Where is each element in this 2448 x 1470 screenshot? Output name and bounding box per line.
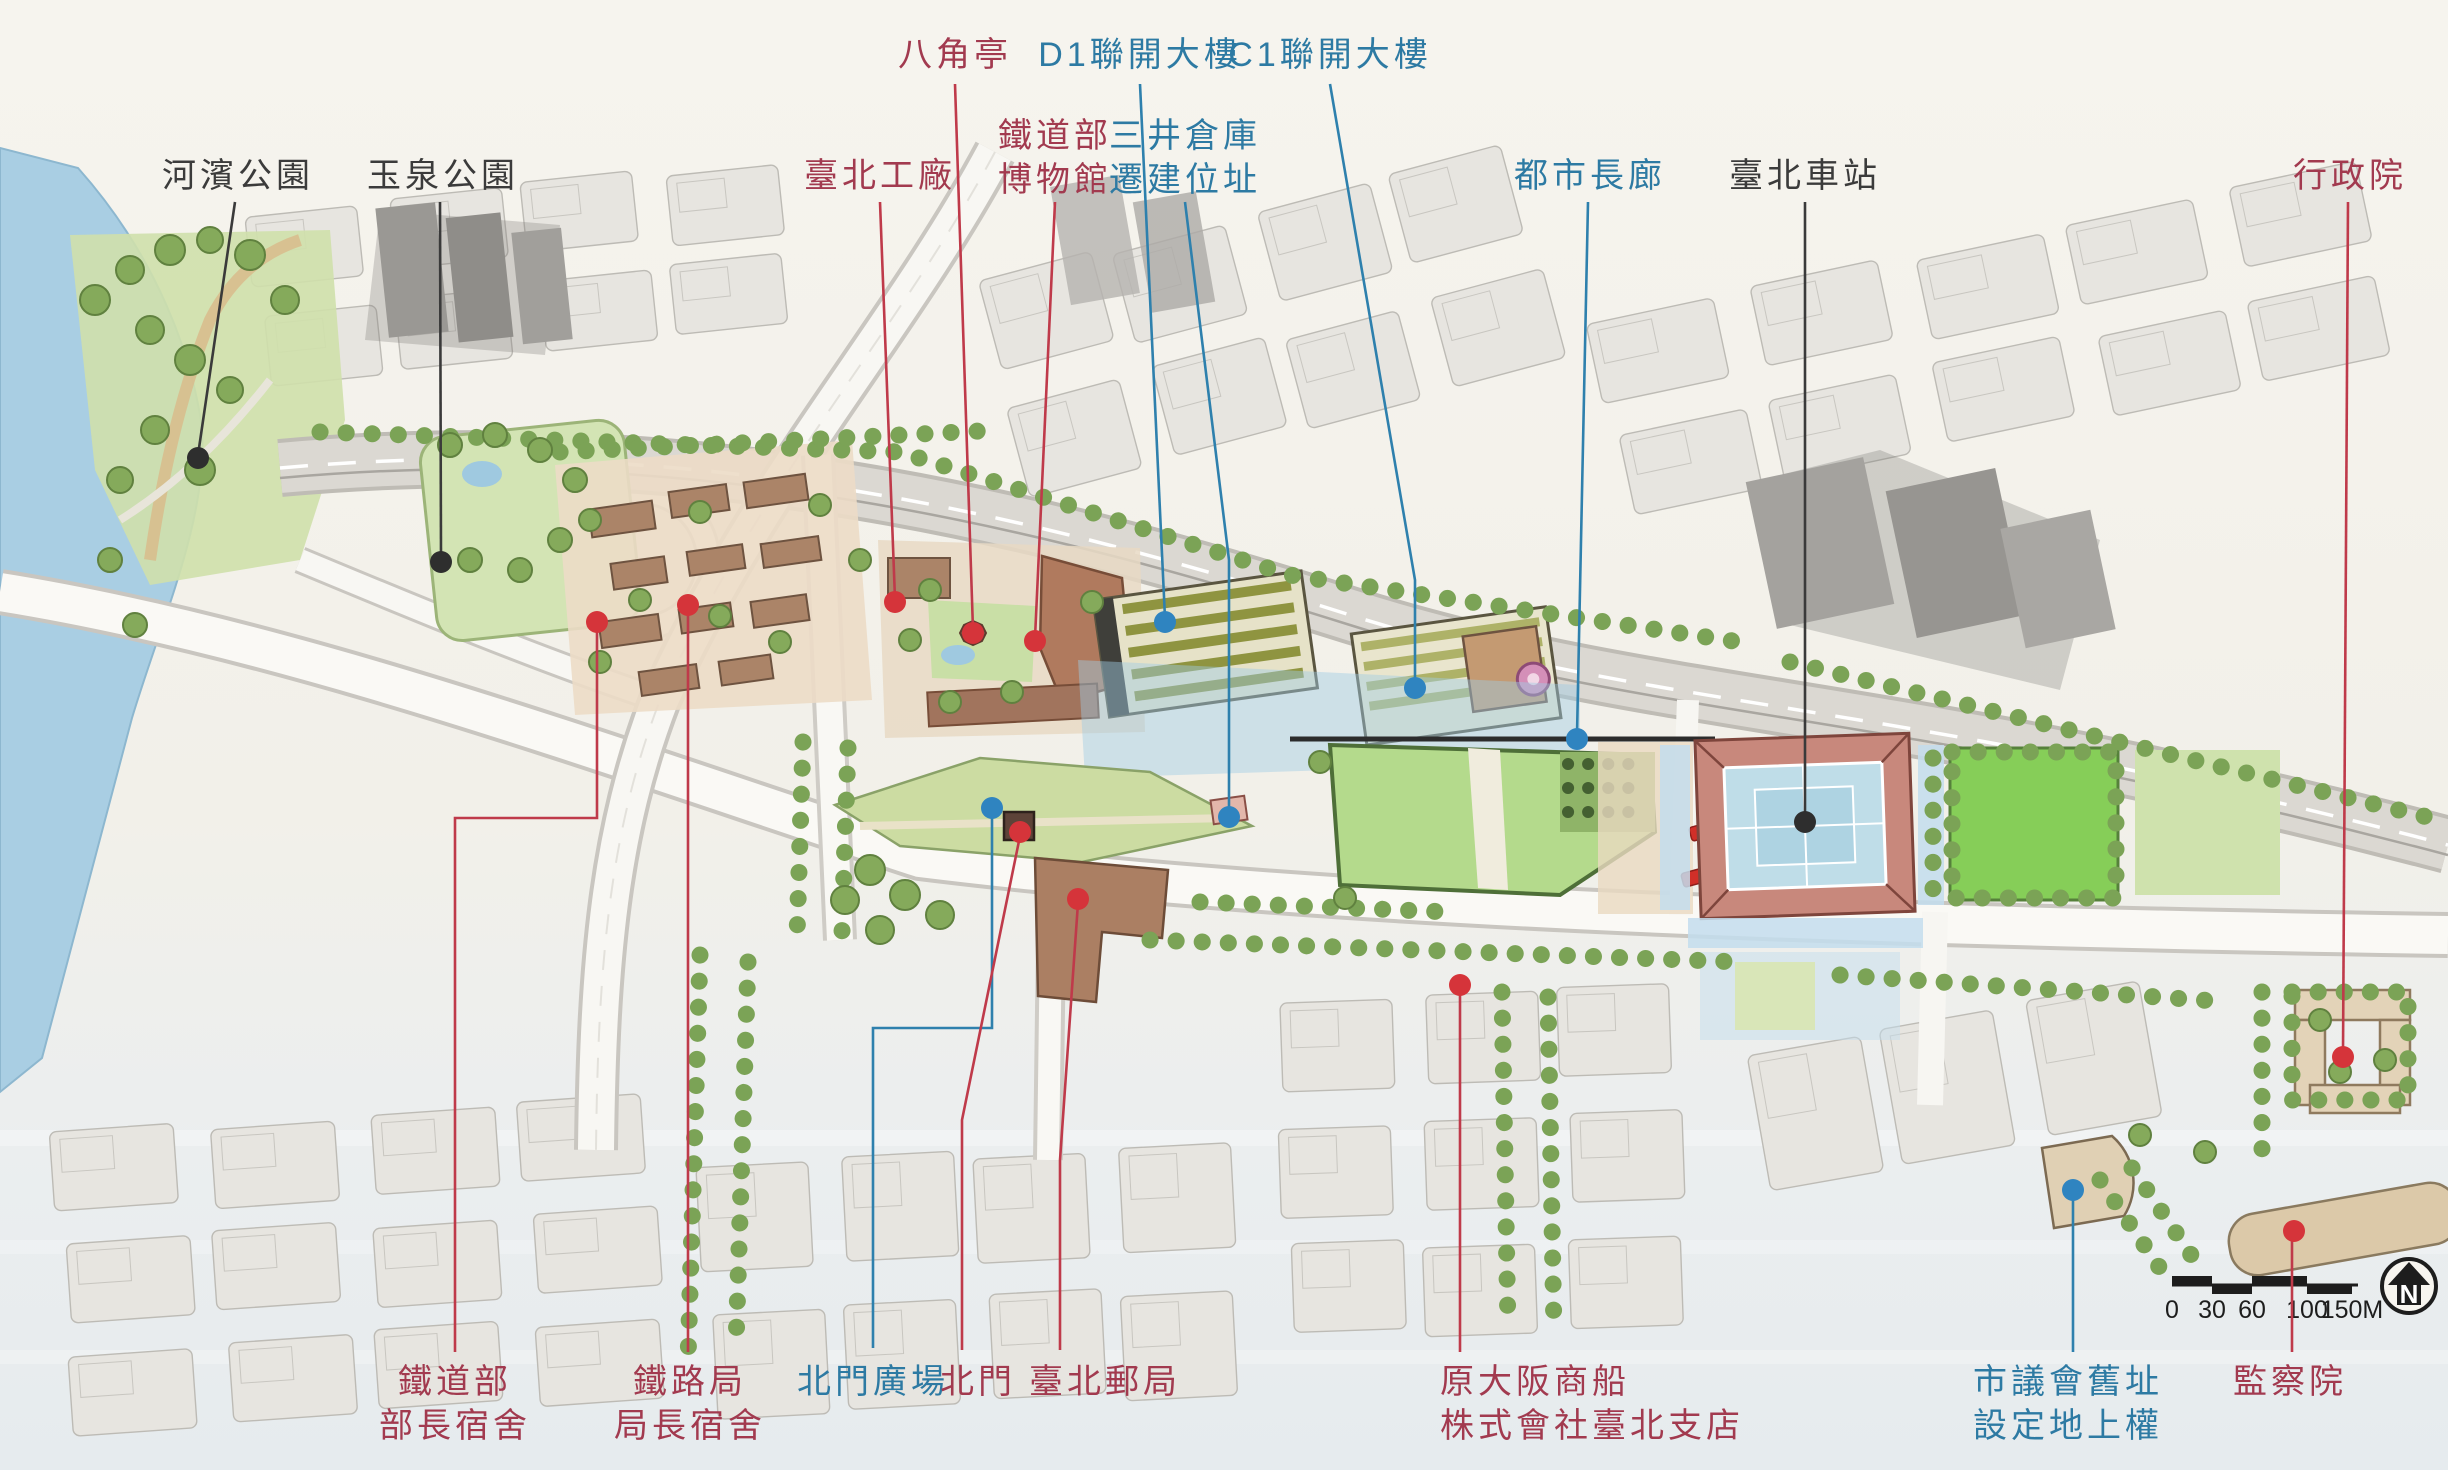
label-taipei-main-station: 臺北車站 [1729, 154, 1881, 198]
label-control-yuan: 監察院 [2233, 1360, 2347, 1404]
label-d1-joint-tower: D1聯開大樓 [1038, 33, 1241, 77]
label-taipei-workshop: 臺北工廠 [804, 154, 956, 198]
label-c1-joint-tower: C1聯開大樓 [1228, 33, 1431, 77]
label-railway-museum: 鐵道部博物館 [998, 114, 1112, 202]
label-city-council-site: 市議會舊址設定地上權 [1973, 1360, 2163, 1448]
label-minister-residence: 鐵道部部長宿舍 [379, 1360, 531, 1448]
label-layer: 河濱公園玉泉公園臺北工廠八角亭鐵道部博物館D1聯開大樓三井倉庫遷建位址C1聯開大… [0, 0, 2448, 1470]
label-osaka-shosen: 原大阪商船株式會社臺北支店 [1440, 1360, 1744, 1448]
label-north-gate: 北門 [940, 1360, 1016, 1404]
label-urban-corridor: 都市長廊 [1514, 154, 1666, 198]
label-director-residence: 鐵路局局長宿舍 [614, 1360, 766, 1448]
label-octagonal-pavilion: 八角亭 [898, 33, 1012, 77]
label-riverside-park: 河濱公園 [162, 154, 314, 198]
label-taipei-post-office: 臺北郵局 [1029, 1360, 1181, 1404]
label-executive-yuan: 行政院 [2293, 154, 2407, 198]
site-plan-poster: 03060100150M N 河濱公園玉泉公園臺北工廠八角亭鐵道部博物館D1聯開… [0, 0, 2448, 1470]
label-mitsui-warehouse: 三井倉庫遷建位址 [1109, 114, 1261, 202]
label-north-gate-plaza: 北門廣場 [797, 1360, 949, 1404]
label-yuquan-park: 玉泉公園 [367, 154, 519, 198]
